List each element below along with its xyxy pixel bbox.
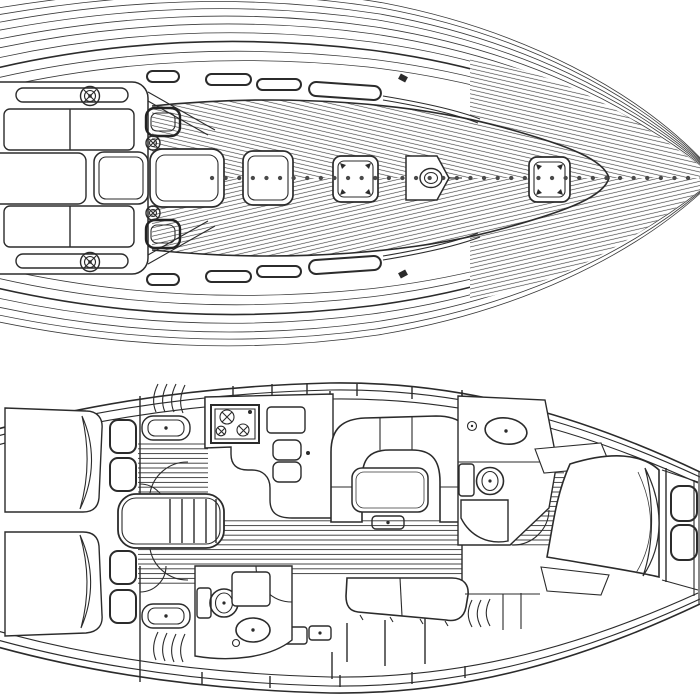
cockpit-locker-vent-fan xyxy=(154,384,185,413)
midship-hatch xyxy=(333,156,378,202)
deck-cleat-starboard xyxy=(398,73,408,82)
bridge-deck-seat xyxy=(94,152,148,204)
vanity-sink xyxy=(142,416,190,440)
deck-cleat-port xyxy=(398,269,408,278)
yacht-plans-drawing xyxy=(0,0,700,700)
interior-plan xyxy=(0,383,700,693)
bow-shelf-cushion xyxy=(671,486,697,521)
bow-shelf-cushion xyxy=(671,525,697,560)
foredeck-hatch xyxy=(529,157,570,202)
saloon-straight-bench xyxy=(346,578,468,626)
aft-head-shower-grating xyxy=(232,572,270,606)
deck-plan xyxy=(0,0,700,346)
galley-counter xyxy=(205,394,333,518)
vanity-sink xyxy=(142,604,190,628)
cockpit-locker-vent-fan xyxy=(154,632,185,662)
seat-cushion xyxy=(110,420,136,453)
seat-cushion xyxy=(110,458,136,491)
locker-knob xyxy=(306,451,310,455)
seat-cushion xyxy=(110,590,136,623)
aft-head xyxy=(195,566,292,659)
seat-cushion xyxy=(110,551,136,584)
yacht-plans-page xyxy=(0,0,700,700)
forward-lockers-and-vents xyxy=(465,593,540,630)
